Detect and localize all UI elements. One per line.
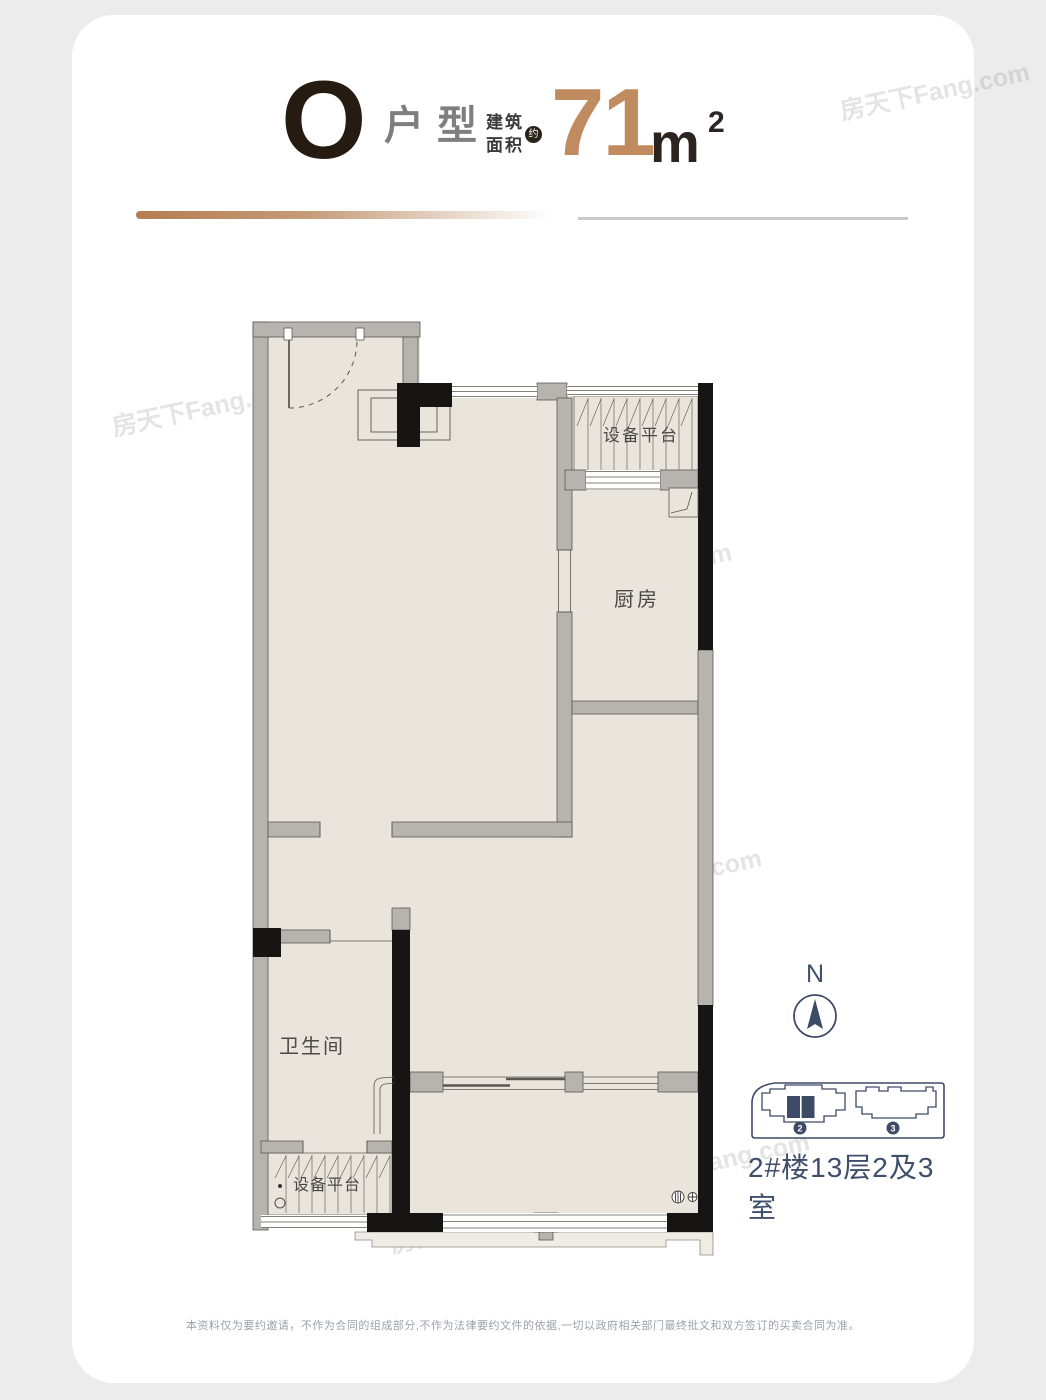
badge-2-number: 2 — [797, 1124, 802, 1134]
label-bathroom: 卫生间 — [279, 1035, 345, 1058]
highlighted-unit-3 — [802, 1096, 815, 1118]
divider-gradient-bar — [136, 211, 560, 219]
unit-type-label: 户型 — [384, 106, 490, 146]
building-area-label-top: 建筑 — [486, 112, 524, 135]
south-ledge — [355, 1232, 713, 1255]
badge-3-number: 3 — [890, 1124, 895, 1134]
label-platform-top: 设备平台 — [603, 426, 679, 445]
highlighted-unit-2 — [787, 1096, 800, 1118]
label-kitchen: 厨房 — [614, 588, 660, 611]
disclaimer-text: 本资料仅为要约邀请，不作为合同的组成部分,不作为法律要约文件的依据,一切以政府相… — [72, 1317, 974, 1333]
area-value: 71 — [551, 75, 654, 171]
building-area-label-bottom: 面积 — [486, 135, 524, 158]
compass-n-label: N — [806, 960, 824, 988]
page: 房天下Fang.com 房天下Fang.com 房天下Fang.com 房天下F… — [0, 0, 1046, 1400]
unit-type-letter: O — [281, 66, 367, 176]
keyplan-caption: 2#楼13层2及3室 — [748, 1146, 948, 1226]
keyplan: 2 3 — [748, 1076, 952, 1146]
floorplan: 设备平台 厨房 卫生间 设备平台 — [250, 315, 718, 1263]
drain-dot — [278, 1184, 282, 1188]
label-platform-bottom: 设备平台 — [293, 1176, 361, 1194]
compass-needle-icon — [807, 999, 823, 1029]
building-area-label: 建筑 面积 — [486, 112, 524, 158]
approx-badge: 约 — [525, 126, 542, 143]
divider-gray-line — [578, 217, 908, 220]
building-3-outline — [856, 1087, 936, 1118]
north-compass: N — [778, 945, 850, 1055]
area-unit: m — [650, 115, 700, 171]
area-unit-sup: 2 — [708, 108, 725, 138]
kitchen-flue — [669, 488, 698, 517]
